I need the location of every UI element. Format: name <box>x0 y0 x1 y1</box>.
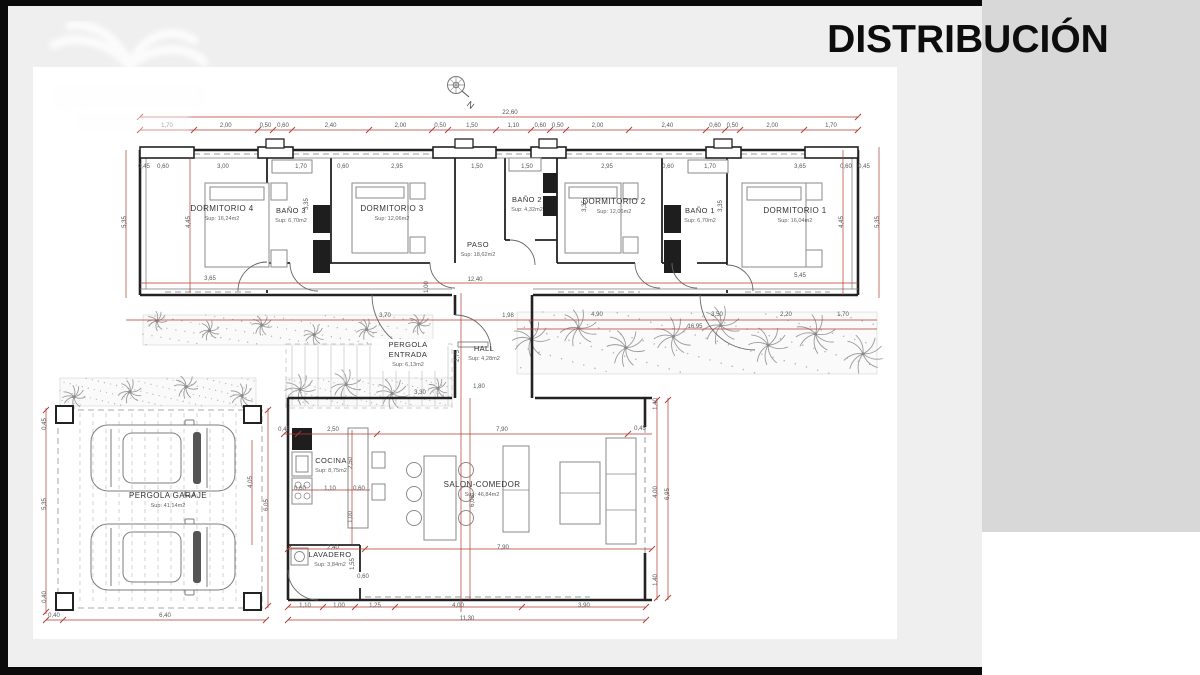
room-label-dormitorio-3: DORMITORIO 3 <box>360 204 423 213</box>
furniture <box>410 183 425 199</box>
dimension-label: 6,95 <box>665 488 671 500</box>
dimension-label: 5,45 <box>794 273 806 279</box>
dimension-label: 1,10 <box>507 123 519 129</box>
dimension-label: 1,00 <box>333 603 345 609</box>
furniture <box>372 484 385 500</box>
room-label-dormitorio-2: DORMITORIO 2 <box>582 197 645 206</box>
dimension-label: 0,60 <box>337 164 349 170</box>
slide-canvas: DISTRIBUCIÓN N 22,601,702,000,500,602,40… <box>0 0 1200 675</box>
dimension-label: 1,50 <box>521 164 533 170</box>
room-area-paso: Sup: 18,62m2 <box>461 252 496 258</box>
dimension-label: 0,50 <box>552 123 564 129</box>
dimension-label: 3,00 <box>217 164 229 170</box>
dimension-label: 1,25 <box>369 603 381 609</box>
vegetation-strip <box>60 378 256 406</box>
dimension-label: 3,65 <box>794 164 806 170</box>
room-label-pergola-entrada: ENTRADA <box>389 350 428 359</box>
dimension-label: 2,40 <box>325 123 337 129</box>
dimension-label: 12,40 <box>467 277 483 283</box>
bathroom-fixture <box>543 173 557 193</box>
room-area-bano-2: Sup: 4,32m2 <box>511 207 543 213</box>
room-label-dormitorio-4: DORMITORIO 4 <box>190 204 253 213</box>
furniture <box>747 187 801 200</box>
dimension-label: 4,05 <box>248 476 254 488</box>
room-label-bano-2: BAÑO 2 <box>512 195 542 204</box>
dimension-label: 3,50 <box>711 312 723 318</box>
dimension-label: 1,40 <box>653 398 659 410</box>
room-label-pergola-entrada: PERGOLA <box>388 340 427 349</box>
dimension-label: 1,70 <box>825 123 837 129</box>
furniture <box>271 183 287 200</box>
furniture <box>271 250 287 267</box>
dimension-label: 0,50 <box>260 123 272 129</box>
dimension-label: 2,00 <box>395 123 407 129</box>
dimension-label: 2,95 <box>391 164 403 170</box>
dimension-label: 3,35 <box>718 200 724 212</box>
furniture <box>503 446 529 532</box>
door-arc <box>727 265 753 291</box>
compass-icon: N <box>448 77 477 111</box>
room-area-lavadero: Sup: 3,84m2 <box>314 562 346 568</box>
vegetation-strip <box>517 312 877 374</box>
door-arc <box>288 570 318 600</box>
dimension-label: 4,90 <box>591 312 603 318</box>
room-label-dormitorio-1: DORMITORIO 1 <box>763 206 826 215</box>
room-area-pergola-garaje: Sup: 41,14m2 <box>151 503 186 509</box>
furniture <box>806 250 822 267</box>
dimension-label: 1,70 <box>837 312 849 318</box>
dining-chair <box>407 511 422 526</box>
room-label-bano-3: BAÑO 3 <box>276 206 306 215</box>
dimension-label: 0,60 <box>157 164 169 170</box>
dimension-label: 0,45 <box>42 418 48 430</box>
dimension-label: 0,60 <box>709 123 721 129</box>
furniture <box>372 452 385 468</box>
dimension-label: 1,00 <box>424 281 430 293</box>
dimension-label: 1,55 <box>350 558 356 570</box>
dimension-label: 0,60 <box>353 486 365 492</box>
furniture <box>806 183 822 200</box>
dimension-label: 0,60 <box>294 486 306 492</box>
door-arc <box>510 240 535 265</box>
room-area-pergola-entrada: Sup: 6,13m2 <box>392 362 424 368</box>
dimension-label: 1,50 <box>471 164 483 170</box>
dimension-label: 2,20 <box>780 312 792 318</box>
dimension-label: 7,90 <box>497 545 509 551</box>
dimension-label: 3,70 <box>379 313 391 319</box>
page-title: DISTRIBUCIÓN <box>812 14 1124 66</box>
dimension-label: 0,60 <box>357 574 369 580</box>
door-arc <box>430 263 455 288</box>
room-area-dormitorio-3: Sup: 12,06m2 <box>375 216 410 222</box>
room-label-salon-comedor: SALON-COMEDOR <box>444 480 521 489</box>
dimension-label: 2,95 <box>601 164 613 170</box>
room-area-dormitorio-1: Sup: 16,04m2 <box>778 218 813 224</box>
dimension-label: 5,35 <box>875 216 881 228</box>
dimension-label: 4,45 <box>839 216 845 228</box>
floor-plan: N 22,601,702,000,500,602,402,000,501,501… <box>33 67 897 639</box>
dimension-label: 3,30 <box>414 390 426 396</box>
room-area-dormitorio-4: Sup: 16,24m2 <box>205 216 240 222</box>
dimension-label: 2,00 <box>592 123 604 129</box>
dimension-label: 7,90 <box>496 427 508 433</box>
bathroom-fixture <box>664 205 681 233</box>
door-arc <box>635 263 660 288</box>
dimension-label: 11,30 <box>460 616 475 622</box>
car-top-view <box>91 420 235 496</box>
dimension-label: 2,00 <box>766 123 778 129</box>
room-label-bano-1: BAÑO 1 <box>685 206 715 215</box>
room-area-dormitorio-2: Sup: 12,06m2 <box>597 209 632 215</box>
dimension-label: 1,00 <box>348 511 354 523</box>
furniture <box>356 187 404 198</box>
furniture <box>210 187 264 200</box>
dimension-label: 1,40 <box>653 574 659 586</box>
dimension-label: 6,40 <box>159 613 171 619</box>
dimension-label: 0,45 <box>278 427 290 433</box>
bathroom-fixture <box>313 240 330 273</box>
dimension-label: 0,45 <box>138 164 150 170</box>
dimension-label: 1,98 <box>502 313 514 319</box>
dimension-label: 0,45 <box>634 426 646 432</box>
room-area-bano-1: Sup: 6,70m2 <box>684 218 716 224</box>
furniture <box>424 456 456 540</box>
dimension-label: 2,40 <box>662 123 674 129</box>
dimension-label: 3,90 <box>578 603 590 609</box>
pergola-post <box>56 593 73 610</box>
car-top-view <box>91 519 235 595</box>
dimension-label: 0,60 <box>840 164 852 170</box>
dimension-label: 3,65 <box>204 276 216 282</box>
room-label-lavadero: LAVADERO <box>309 550 352 559</box>
room-label-pergola-garaje: PERGOLA GARAJE <box>129 491 207 500</box>
furniture <box>410 237 425 253</box>
room-label-cocina: COCINA <box>315 456 347 465</box>
dimension-label: 22,60 <box>502 109 518 116</box>
dimension-label: 0,50 <box>727 123 739 129</box>
room-area-hall: Sup: 4,28m2 <box>468 356 500 362</box>
dimension-label: 16,95 <box>687 324 703 330</box>
dimension-label: 6,05 <box>264 499 270 511</box>
dimension-label: 4,00 <box>452 603 464 609</box>
dimension-label: 1,50 <box>466 123 478 129</box>
dimension-label: 1,70 <box>704 164 716 170</box>
room-area-bano-3: Sup: 6,70m2 <box>275 218 307 224</box>
dimension-label: 0,40 <box>48 613 60 619</box>
dimension-label: 4,45 <box>186 216 192 228</box>
room-area-salon-comedor: Sup: 46,84m2 <box>465 492 500 498</box>
dining-chair <box>407 487 422 502</box>
bathroom-fixture <box>292 428 312 450</box>
bathroom-fixture <box>543 196 557 216</box>
pergola-post <box>244 406 261 423</box>
dimension-label: 1,80 <box>473 384 485 390</box>
furniture <box>291 548 308 565</box>
dimension-label: 0,45 <box>858 164 870 170</box>
dimension-label: 0,60 <box>534 123 546 129</box>
pergola-post <box>244 593 261 610</box>
furniture <box>296 456 308 472</box>
dimension-label: 0,40 <box>42 591 48 603</box>
dimension-label: 2,50 <box>327 427 339 433</box>
dimension-label: 1,10 <box>299 603 311 609</box>
dimension-label: 1,70 <box>295 164 307 170</box>
right-white-area <box>982 532 1200 675</box>
garage-pergola-outline <box>58 410 262 608</box>
dimension-label: 1,10 <box>324 486 336 492</box>
right-gray-panel <box>982 0 1200 532</box>
room-label-paso: PASO <box>467 240 489 249</box>
furniture <box>623 237 638 253</box>
dimension-label: 0,60 <box>277 123 289 129</box>
dimension-label: 4,00 <box>653 486 659 498</box>
dining-chair <box>407 463 422 478</box>
furniture <box>606 438 636 544</box>
dimension-label: 5,35 <box>122 216 128 228</box>
dimension-label: 2,50 <box>348 457 354 469</box>
dimension-label: 5,35 <box>42 498 48 510</box>
pergola-post <box>56 406 73 423</box>
room-area-cocina: Sup: 8,75m2 <box>315 468 347 474</box>
compass-north-label: N <box>465 99 476 111</box>
dimension-label: 2,75 <box>455 350 461 362</box>
bathroom-fixture <box>313 205 330 233</box>
room-label-hall: HALL <box>474 344 494 353</box>
dimension-label: 1,70 <box>161 123 173 129</box>
dimension-label: 0,60 <box>662 164 674 170</box>
dimension-label: 0,50 <box>434 123 446 129</box>
dimension-label: 2,00 <box>220 123 232 129</box>
